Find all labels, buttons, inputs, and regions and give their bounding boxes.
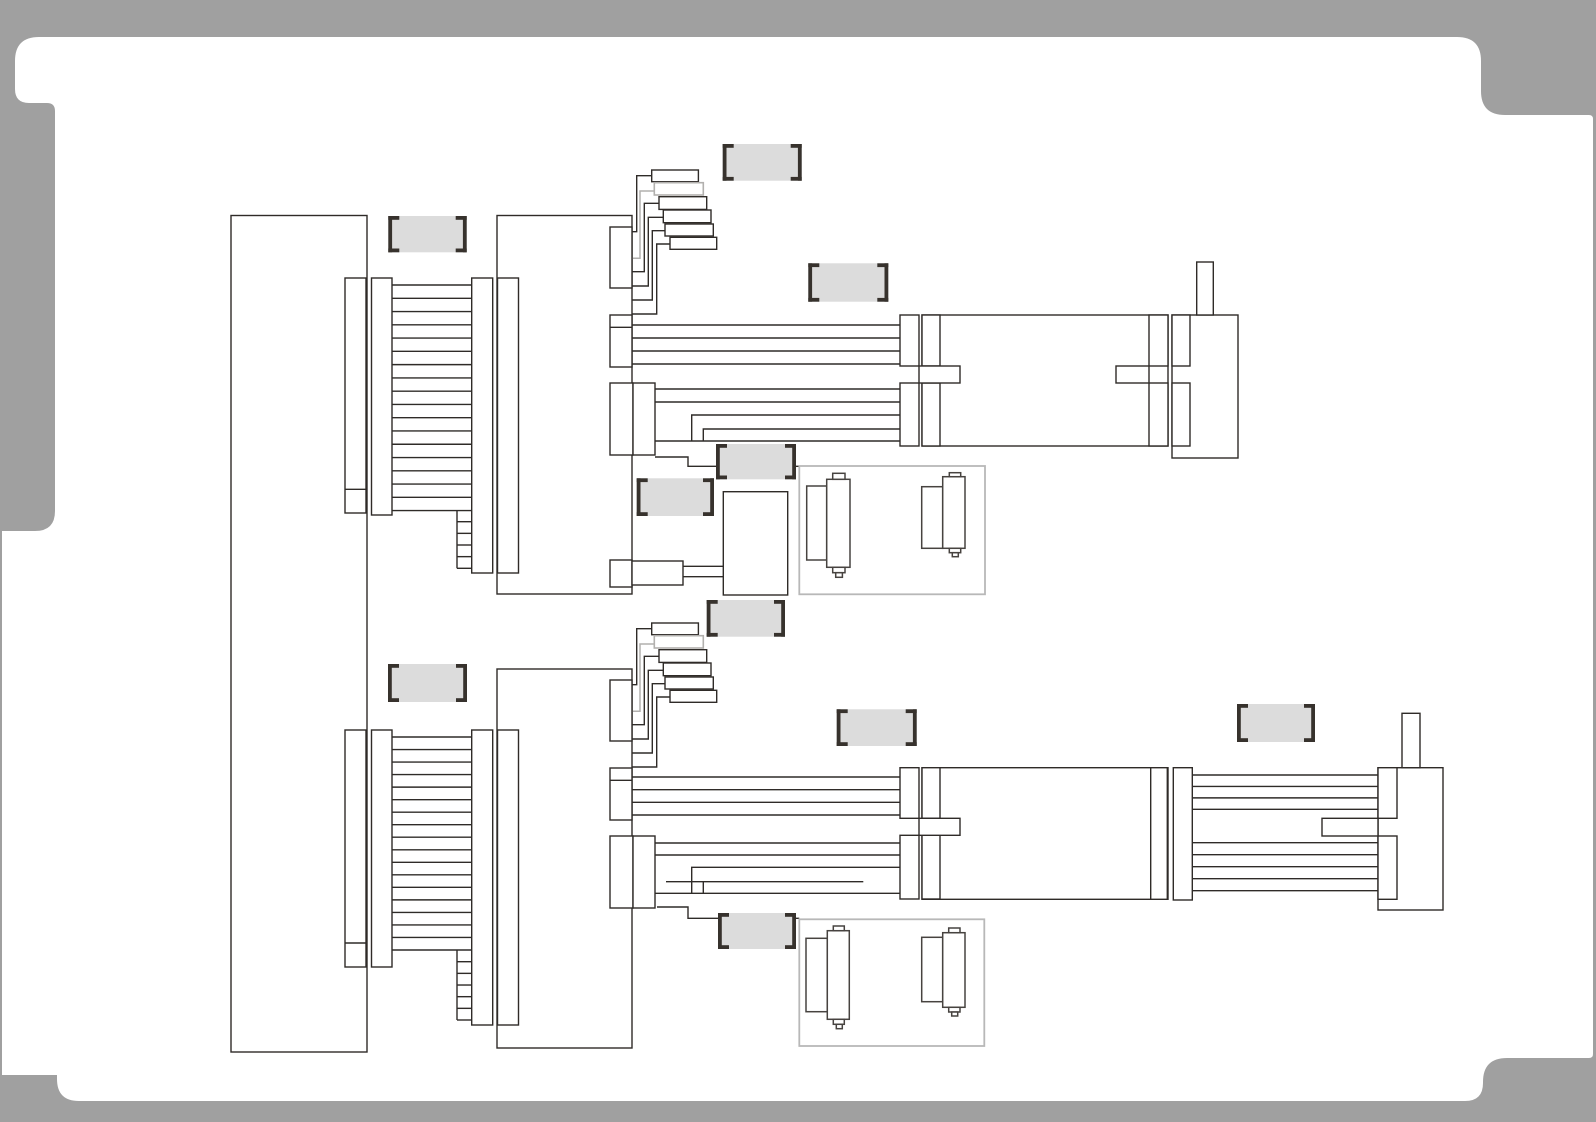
capacitor-nub <box>952 553 958 557</box>
label-bracket <box>637 512 648 516</box>
label-bracket <box>388 249 399 253</box>
capacitor-cap <box>833 567 845 572</box>
label-bracket <box>877 298 888 302</box>
harness-plug-gray <box>654 183 703 195</box>
end-device-conn <box>1172 383 1190 446</box>
label-bracket <box>913 709 917 746</box>
relay-plug <box>632 561 683 585</box>
label-bracket <box>456 664 467 668</box>
label-bracket <box>388 698 399 702</box>
ribbon-conn-right-outer-top <box>498 278 519 573</box>
redacted-label-relay-top-fill <box>637 478 714 516</box>
label-bracket <box>1237 704 1241 742</box>
capacitor-nub <box>952 1012 958 1016</box>
cable-plug-bottom <box>633 836 655 908</box>
label-bracket <box>710 478 714 516</box>
label-bracket <box>637 478 648 482</box>
label-bracket <box>388 664 399 668</box>
redacted-label-ribbon-top <box>388 216 466 252</box>
label-bracket <box>798 144 802 181</box>
label-bracket <box>906 709 917 713</box>
label-bracket <box>456 698 467 702</box>
redacted-label-motor-top-fill <box>808 263 888 301</box>
label-bracket <box>723 177 734 181</box>
label-bracket <box>785 945 796 949</box>
motor-conn-section <box>900 835 919 899</box>
label-bracket <box>837 709 841 746</box>
label-bracket <box>1304 704 1315 708</box>
label-bracket <box>808 298 819 302</box>
capacitor-cap <box>949 928 960 933</box>
label-bracket <box>792 444 796 479</box>
label-bracket <box>785 476 796 480</box>
harness-plug <box>665 677 713 689</box>
capacitor-nub <box>836 573 843 578</box>
label-bracket <box>808 263 812 301</box>
redacted-label-end-device-bottom <box>1237 704 1315 742</box>
label-bracket <box>877 263 888 267</box>
motor-latch-tab <box>1116 366 1149 383</box>
label-bracket <box>837 709 848 713</box>
label-bracket <box>774 633 785 637</box>
harness-plug <box>663 663 711 676</box>
label-bracket <box>1237 738 1248 742</box>
label-bracket <box>781 600 785 637</box>
end-device-conn <box>1378 768 1397 819</box>
label-bracket <box>885 263 889 301</box>
harness-plug <box>652 623 699 635</box>
relay-socket <box>610 560 632 587</box>
redacted-label-harness-bottom <box>707 600 785 637</box>
capacitor-plate <box>807 486 827 560</box>
redacted-label-harness-top <box>723 144 802 181</box>
board-socket-top <box>610 315 632 367</box>
label-bracket <box>791 144 802 148</box>
label-bracket <box>1237 704 1248 708</box>
capacitor-body <box>943 933 965 1008</box>
label-bracket <box>388 216 392 252</box>
label-bracket <box>808 263 819 267</box>
label-bracket <box>718 913 729 917</box>
motor-conn-section <box>900 383 919 446</box>
cable-plug-top <box>633 383 655 455</box>
label-bracket <box>456 216 467 220</box>
board-socket-bottom <box>610 836 633 908</box>
redacted-label-component-box-bottom-fill <box>718 913 796 949</box>
redacted-label-component-box-top <box>716 444 796 479</box>
scanned-manual-page <box>0 0 1596 1122</box>
board-socket-bottom <box>610 680 632 741</box>
label-bracket <box>1311 704 1315 742</box>
capacitor-plate <box>922 487 943 549</box>
label-bracket <box>716 444 720 479</box>
ribbon-conn-left-inner-top <box>345 278 366 513</box>
redacted-label-relay-top <box>637 478 714 516</box>
ribbon-conn-right-outer-bottom <box>498 730 519 1025</box>
redacted-label-ribbon-bottom <box>388 664 467 702</box>
harness-plug <box>652 170 699 182</box>
label-bracket <box>723 144 727 181</box>
label-bracket <box>774 600 785 604</box>
board-socket-top <box>610 383 633 455</box>
relay-module <box>723 492 787 595</box>
extension-conn <box>1173 768 1192 900</box>
label-bracket <box>837 742 848 746</box>
label-bracket <box>785 444 796 448</box>
label-bracket <box>707 633 718 637</box>
redacted-label-harness-top-fill <box>723 144 802 181</box>
motor-conn-section <box>922 315 940 366</box>
harness-plug <box>663 210 711 223</box>
terminal-stub <box>1402 713 1420 767</box>
capacitor-body <box>827 931 849 1020</box>
label-bracket <box>718 913 722 949</box>
label-bracket <box>388 216 399 220</box>
motor-conn-section <box>922 835 940 899</box>
label-bracket <box>707 600 718 604</box>
ribbon-conn-left-outer-top <box>372 278 393 515</box>
label-bracket <box>718 945 729 949</box>
board-socket-top <box>610 227 632 288</box>
label-bracket <box>703 512 714 516</box>
label-bracket <box>707 600 711 637</box>
motor-conn-section <box>922 383 940 446</box>
motor-conn-section <box>1149 315 1168 366</box>
redacted-label-ribbon-top-fill <box>388 216 466 252</box>
label-bracket <box>456 249 467 253</box>
terminal-stub <box>1197 262 1214 315</box>
harness-plug <box>670 237 717 249</box>
label-bracket <box>716 444 727 448</box>
motor-conn-section <box>900 768 919 819</box>
capacitor-cap <box>833 473 845 479</box>
end-device-conn <box>1172 315 1190 366</box>
redacted-label-motor-bottom-fill <box>837 709 917 746</box>
label-bracket <box>703 478 714 482</box>
capacitor-cap <box>833 926 844 931</box>
redacted-label-end-device-bottom-fill <box>1237 704 1315 742</box>
motor-conn-section <box>1151 768 1168 900</box>
label-bracket <box>906 742 917 746</box>
capacitor-body <box>943 477 965 549</box>
label-bracket <box>637 478 641 516</box>
ribbon-conn-left-outer-bottom <box>372 730 393 967</box>
label-bracket <box>1304 738 1315 742</box>
harness-plug <box>659 650 707 663</box>
ribbon-conn-right-inner-bottom <box>472 730 493 1025</box>
label-bracket <box>791 177 802 181</box>
label-bracket <box>388 664 392 702</box>
board-socket-bottom <box>610 768 632 820</box>
redacted-label-motor-bottom <box>837 709 917 746</box>
label-bracket <box>723 144 734 148</box>
motor-conn-section <box>1149 383 1168 446</box>
label-bracket <box>463 216 467 252</box>
motor-latch-tab <box>919 818 960 835</box>
redacted-label-ribbon-bottom-fill <box>388 664 467 702</box>
harness-plug-gray <box>654 636 703 648</box>
ribbon-conn-right-inner-top <box>472 278 493 573</box>
redacted-label-component-box-top-fill <box>716 444 796 479</box>
label-bracket <box>463 664 467 702</box>
redacted-label-component-box-bottom <box>718 913 796 949</box>
wiring-diagram-svg <box>0 0 1596 1122</box>
label-bracket <box>785 913 796 917</box>
label-bracket <box>792 913 796 949</box>
capacitor-nub <box>836 1024 842 1028</box>
harness-plug <box>670 690 717 702</box>
harness-plug <box>659 197 707 210</box>
redacted-label-harness-bottom-fill <box>707 600 785 637</box>
harness-plug <box>665 224 713 236</box>
ribbon-conn-left-inner-bottom <box>345 730 366 967</box>
motor-conn-section <box>900 315 919 366</box>
capacitor-plate <box>806 938 827 1011</box>
label-bracket <box>716 476 727 480</box>
motor-conn-section <box>922 768 940 819</box>
capacitor-body <box>827 479 850 567</box>
motor-latch-tab <box>1322 818 1378 836</box>
capacitor-plate <box>922 937 943 1001</box>
redacted-label-motor-top <box>808 263 888 301</box>
capacitor-cap <box>949 473 960 477</box>
end-device-conn <box>1378 836 1397 899</box>
motor-latch-tab <box>919 366 960 383</box>
